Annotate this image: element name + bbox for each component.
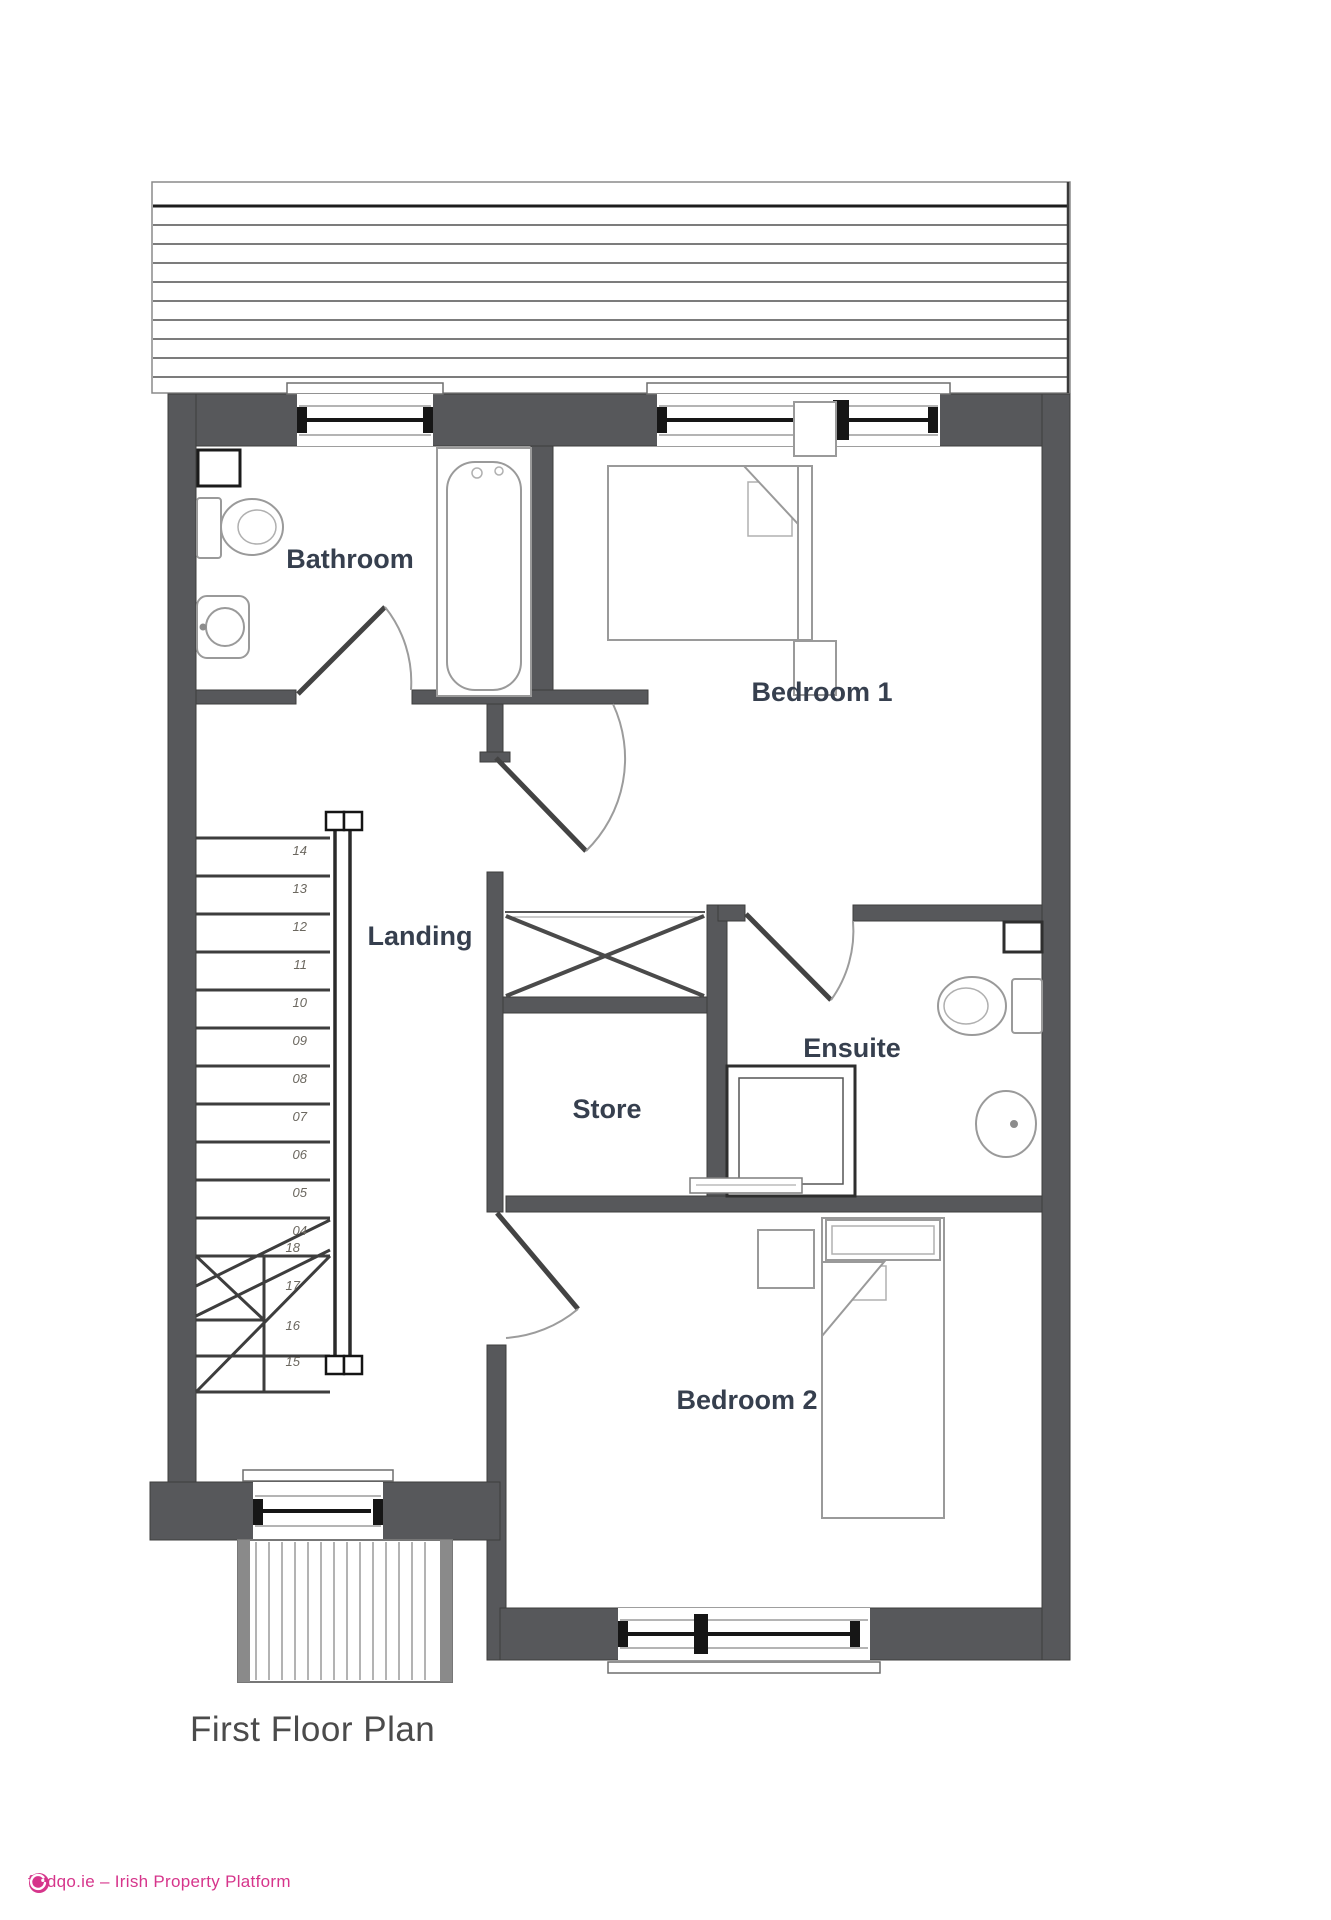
window-top-1 bbox=[287, 383, 443, 446]
stair-tread-number: 16 bbox=[286, 1318, 301, 1333]
stair-tread-number: 17 bbox=[286, 1278, 301, 1293]
toilet bbox=[197, 498, 283, 558]
wall-right bbox=[1042, 394, 1070, 1660]
stair-tread-number: 12 bbox=[293, 919, 308, 934]
wall-bathroom-south-a bbox=[196, 690, 296, 704]
wall-bedroom2-north bbox=[506, 1196, 1042, 1212]
window-bottom-left bbox=[243, 1470, 393, 1540]
bedside-cabinet bbox=[758, 1230, 814, 1288]
bathroom-door bbox=[298, 607, 411, 694]
room-label-bedroom2: Bedroom 2 bbox=[676, 1385, 817, 1415]
plan-title: First Floor Plan bbox=[190, 1710, 435, 1750]
watermark-text: findqo.ie – Irish Property Platform bbox=[28, 1872, 291, 1892]
stair-tread-number: 15 bbox=[286, 1354, 301, 1369]
wall-ensuite-door-stub bbox=[718, 905, 745, 921]
stair-tread-number: 13 bbox=[293, 881, 308, 896]
room-label-landing: Landing bbox=[368, 921, 473, 951]
stair-tread-number: 11 bbox=[294, 957, 308, 972]
floor-plan-image: 14 13 12 11 10 09 08 07 06 05 04 18 17 1… bbox=[0, 0, 1331, 1920]
duct-box bbox=[198, 450, 240, 486]
wall-spine bbox=[487, 872, 503, 1212]
stair-tread-number: 04 bbox=[293, 1223, 307, 1238]
stair-handrail bbox=[326, 812, 362, 1374]
stair-tread-number: 10 bbox=[293, 995, 308, 1010]
stair-tread-number: 09 bbox=[293, 1033, 307, 1048]
double-bed bbox=[608, 466, 812, 640]
stair-tread-number: 05 bbox=[293, 1185, 308, 1200]
stair-tread-numbers: 14 13 12 11 10 09 08 07 06 05 04 18 17 1… bbox=[286, 843, 308, 1369]
watermark: findqo.ie – Irish Property Platform bbox=[28, 1872, 291, 1892]
wall-bathroom-bedroom1 bbox=[531, 446, 553, 692]
overstairs-void bbox=[505, 912, 705, 996]
toilet bbox=[938, 977, 1042, 1035]
room-label-ensuite: Ensuite bbox=[803, 1033, 901, 1063]
washbasin bbox=[976, 1091, 1036, 1157]
duct-box bbox=[1004, 922, 1042, 952]
window-bottom bbox=[608, 1608, 880, 1673]
wall-ensuite-north bbox=[853, 905, 1042, 921]
ensuite-door bbox=[746, 914, 853, 1000]
room-label-bedroom1: Bedroom 1 bbox=[751, 677, 892, 707]
wall-left bbox=[168, 394, 196, 1540]
bedroom2-door bbox=[497, 1213, 578, 1338]
stair-tread-number: 14 bbox=[293, 843, 307, 858]
wall-ensuite-west bbox=[707, 905, 727, 1212]
bedroom1-door bbox=[496, 704, 625, 851]
room-label-store: Store bbox=[572, 1094, 641, 1124]
stair-tread-number: 08 bbox=[293, 1071, 308, 1086]
single-bed bbox=[822, 1218, 944, 1518]
findqo-logo-icon bbox=[28, 1872, 50, 1894]
stair-tread-number: 07 bbox=[293, 1109, 308, 1124]
radiator bbox=[690, 1178, 802, 1193]
wall-store-north bbox=[503, 997, 710, 1013]
external-steps bbox=[238, 1540, 452, 1682]
shower-tray bbox=[727, 1066, 855, 1196]
floor-plan-drawing: 14 13 12 11 10 09 08 07 06 05 04 18 17 1… bbox=[0, 0, 1331, 1920]
wall-stub bbox=[487, 704, 503, 754]
headboard bbox=[798, 466, 812, 640]
bedroom2-furniture bbox=[758, 1218, 944, 1518]
stair-tread-number: 18 bbox=[286, 1240, 301, 1255]
room-label-bathroom: Bathroom bbox=[286, 544, 414, 574]
bathtub bbox=[437, 448, 531, 696]
staircase: 14 13 12 11 10 09 08 07 06 05 04 18 17 1… bbox=[196, 812, 362, 1392]
washbasin bbox=[197, 596, 249, 658]
doors bbox=[298, 607, 853, 1338]
stair-tread-number: 06 bbox=[293, 1147, 308, 1162]
roof-hatch bbox=[152, 182, 1070, 393]
bedside-cabinet bbox=[794, 402, 836, 456]
